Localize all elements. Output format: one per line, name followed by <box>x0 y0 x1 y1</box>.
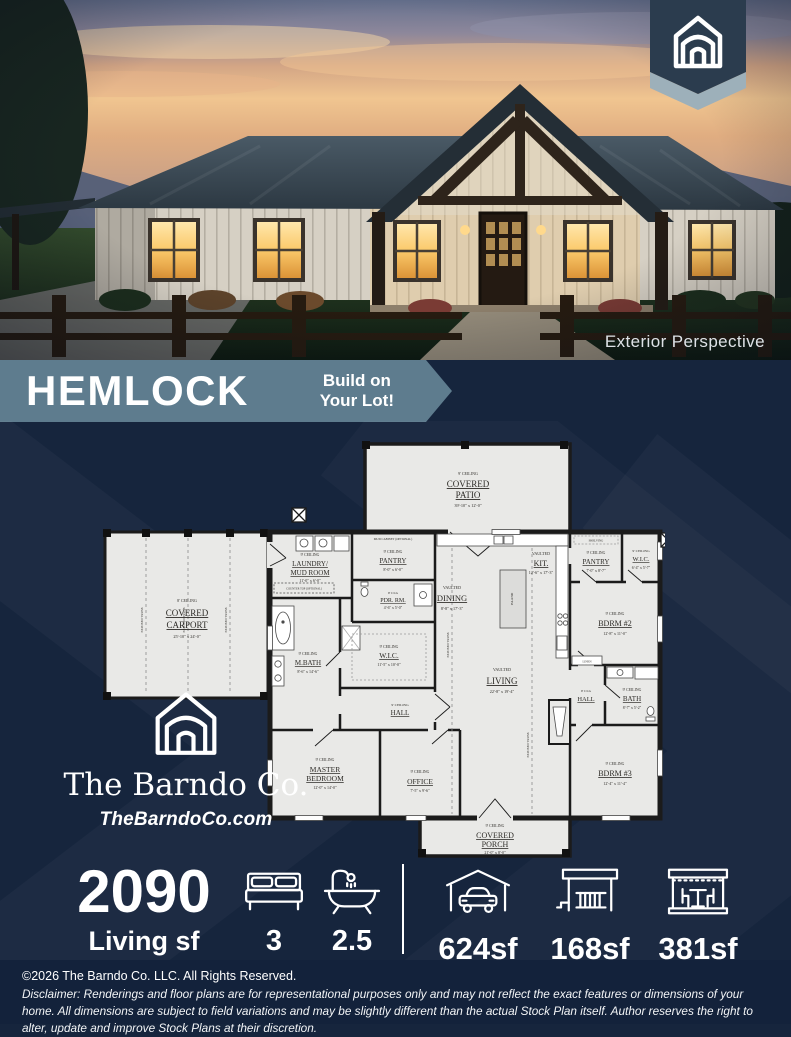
living-sf-label: Living sf <box>75 926 213 957</box>
bathtub-icon <box>321 864 383 916</box>
svg-text:W.I.C.: W.I.C. <box>379 651 399 660</box>
svg-text:8'-0" x 6'-0": 8'-0" x 6'-0" <box>383 567 403 572</box>
svg-text:PATIO: PATIO <box>456 490 481 500</box>
svg-text:12'-8" x 11'-0": 12'-8" x 11'-0" <box>603 631 627 636</box>
svg-text:BDRM #2: BDRM #2 <box>598 619 632 628</box>
svg-text:9' CEILING: 9' CEILING <box>299 652 318 656</box>
svg-text:HALL: HALL <box>577 696 594 703</box>
svg-text:9' CEILING: 9' CEILING <box>623 688 642 692</box>
carport-icon <box>443 864 513 920</box>
svg-text:9' CEILING: 9' CEILING <box>380 645 399 649</box>
patio-icon <box>663 864 733 920</box>
svg-text:PDR. RM.: PDR. RM. <box>380 598 406 604</box>
svg-text:VAULTED: VAULTED <box>532 551 550 556</box>
baths-stat: 2.5 <box>316 864 388 958</box>
svg-text:EXPOSED TRUSS: EXPOSED TRUSS <box>182 607 186 632</box>
brand-logo-block: The Barndo Co. TheBarndoCo.com <box>58 686 314 831</box>
svg-text:KIT.: KIT. <box>534 559 549 568</box>
svg-text:8' CEILING: 8' CEILING <box>177 598 197 603</box>
svg-text:9' CEILING: 9' CEILING <box>384 550 403 554</box>
svg-text:W.I.C.: W.I.C. <box>633 556 650 563</box>
svg-text:9' CLG: 9' CLG <box>581 689 592 693</box>
beds-stat: 3 <box>238 868 310 958</box>
svg-text:11'-5" x 10'-0": 11'-5" x 10'-0" <box>377 662 401 667</box>
svg-text:HALL: HALL <box>391 709 410 717</box>
svg-text:DINING: DINING <box>437 593 467 603</box>
brand-name: The Barndo Co. <box>58 767 314 803</box>
svg-text:25'-10" x 24'-0": 25'-10" x 24'-0" <box>173 634 201 639</box>
plan-title: HEMLOCK <box>26 367 249 415</box>
barn-logo-icon <box>146 686 226 758</box>
svg-text:8'-7" x 5'-2": 8'-7" x 5'-2" <box>623 706 642 710</box>
svg-text:21'-0" x 8'-0": 21'-0" x 8'-0" <box>484 850 506 855</box>
living-sf-value: 2090 <box>75 862 213 922</box>
svg-text:39'-10" x 12'-0": 39'-10" x 12'-0" <box>454 503 482 508</box>
svg-text:9' CEILING: 9' CEILING <box>316 758 335 762</box>
svg-text:M.BATH: M.BATH <box>295 659 321 667</box>
porch-sf-stat: 168sf <box>540 864 640 967</box>
footer: ©2026 The Barndo Co. LLC. All Rights Res… <box>0 960 791 1024</box>
svg-text:COVERED: COVERED <box>447 479 490 489</box>
svg-text:PANTRY: PANTRY <box>380 557 407 565</box>
svg-text:PANTRY: PANTRY <box>583 558 610 566</box>
svg-text:9' CEILING: 9' CEILING <box>606 762 625 766</box>
bed-icon <box>242 868 306 916</box>
beds-count: 3 <box>238 925 310 958</box>
svg-text:9' CEILING: 9' CEILING <box>606 612 625 616</box>
svg-text:EXPOSED TRUSS: EXPOSED TRUSS <box>526 732 530 757</box>
porch-icon <box>555 864 625 920</box>
svg-text:EXPOSED TRUSS: EXPOSED TRUSS <box>224 607 228 632</box>
mud-cabinet-label: MUD CABINET (OPTIONAL) <box>374 537 412 541</box>
svg-text:4'-6" x 5'-0": 4'-6" x 5'-0" <box>384 606 403 610</box>
svg-text:MASTER: MASTER <box>310 765 340 774</box>
brand-website[interactable]: TheBarndoCo.com <box>58 809 314 831</box>
svg-text:22'-8" x 19'-4": 22'-8" x 19'-4" <box>490 689 515 694</box>
counter-top-label: COUNTER TOP (OPTIONAL) <box>286 588 322 591</box>
svg-text:BDRM #3: BDRM #3 <box>598 769 632 778</box>
title-banner: HEMLOCK Build on Your Lot! <box>0 360 452 422</box>
room-hall-1: 9' CEILINGHALL <box>391 703 410 717</box>
room-bath-2: 9' CEILINGBATH8'-7" x 5'-2" <box>623 688 642 710</box>
island-label: ISLAND <box>510 592 514 605</box>
svg-text:12'-0" x 14'-0": 12'-0" x 14'-0" <box>313 785 337 790</box>
svg-text:BATH: BATH <box>623 695 641 703</box>
living-area-stat: 2090 Living sf <box>75 862 213 957</box>
svg-text:12'-6" x 17'-3": 12'-6" x 17'-3" <box>529 570 554 575</box>
svg-text:COVERED: COVERED <box>166 608 209 618</box>
baths-count: 2.5 <box>316 925 388 958</box>
svg-text:EXPOSED TRUSS: EXPOSED TRUSS <box>446 632 450 657</box>
svg-text:11'-0" x 6'-0": 11'-0" x 6'-0" <box>299 578 321 583</box>
svg-text:9' CEILING: 9' CEILING <box>486 824 505 828</box>
svg-text:VAULTED: VAULTED <box>443 585 461 590</box>
room-wic-1: 9' CEILINGW.I.C.11'-5" x 10'-0" <box>377 645 401 667</box>
exterior-caption: Exterior Perspective <box>605 332 765 352</box>
svg-text:6'-4" x 5'-7": 6'-4" x 5'-7" <box>632 566 651 570</box>
copyright-text: ©2026 The Barndo Co. LLC. All Rights Res… <box>22 969 791 983</box>
disclaimer-text: Disclaimer: Renderings and floor plans a… <box>22 986 774 1037</box>
svg-text:9' CLG: 9' CLG <box>388 591 399 595</box>
brand-badge <box>650 0 746 122</box>
patio-sf-stat: 381sf <box>648 864 748 967</box>
linen-label: LINEN <box>583 660 593 664</box>
svg-text:MUD ROOM: MUD ROOM <box>290 569 330 577</box>
shelving-label: SHELVING <box>589 539 605 543</box>
svg-text:COVERED: COVERED <box>476 831 514 840</box>
svg-text:8'-6" x 14'-6": 8'-6" x 14'-6" <box>297 669 319 674</box>
svg-text:OFFICE: OFFICE <box>407 777 433 786</box>
svg-text:CARPORT: CARPORT <box>167 620 208 630</box>
svg-text:8'-8" x 17'-3": 8'-8" x 17'-3" <box>441 606 464 611</box>
svg-text:9' CEILING: 9' CEILING <box>458 471 478 476</box>
svg-text:9' CEILING: 9' CEILING <box>301 553 320 557</box>
svg-text:9' CEILING: 9' CEILING <box>587 551 606 555</box>
svg-text:VAULTED: VAULTED <box>493 667 511 672</box>
svg-text:9' CEILING: 9' CEILING <box>391 703 409 707</box>
room-wic-2: 9' CEILINGW.I.C.6'-4" x 5'-7" <box>632 549 651 570</box>
svg-text:7'-0" x 8'-7": 7'-0" x 8'-7" <box>586 568 606 573</box>
stats-divider <box>402 864 404 954</box>
svg-text:7'-5" x 9'-6": 7'-5" x 9'-6" <box>410 788 430 793</box>
svg-text:9' CEILING: 9' CEILING <box>411 770 430 774</box>
garage-sf-stat: 624sf <box>428 864 528 967</box>
svg-text:LAUNDRY/: LAUNDRY/ <box>292 560 328 568</box>
room-master-bath: 9' CEILINGM.BATH8'-6" x 14'-6" <box>295 652 321 674</box>
svg-text:PORCH: PORCH <box>482 840 509 849</box>
svg-text:EXPOSED TRUSS: EXPOSED TRUSS <box>140 607 144 632</box>
build-on-your-lot-tag: Build on Your Lot! <box>320 371 394 410</box>
svg-text:LIVING: LIVING <box>487 676 518 686</box>
svg-text:9' CEILING: 9' CEILING <box>632 549 650 553</box>
svg-text:12'-4" x 11'-4": 12'-4" x 11'-4" <box>603 781 627 786</box>
